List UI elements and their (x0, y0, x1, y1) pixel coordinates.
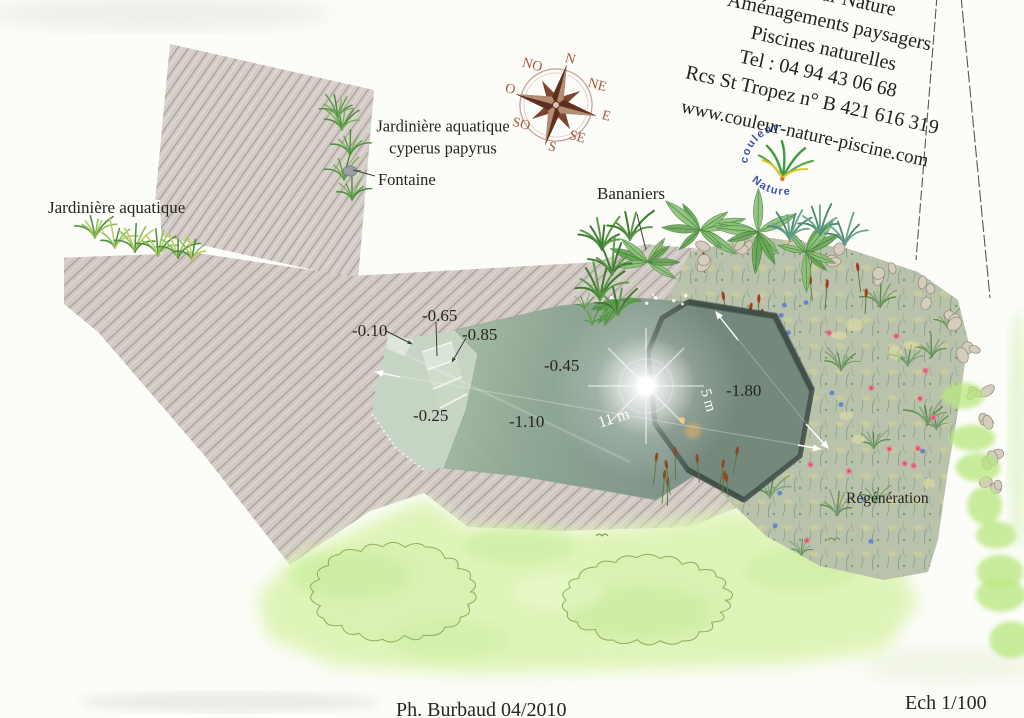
depth-045: -0.45 (544, 356, 579, 376)
depth-065: -0.65 (422, 306, 457, 326)
depth-110: -1.10 (509, 412, 544, 432)
depth-025: -0.25 (413, 406, 448, 426)
label-jardiniere-cyperus: Jardinière aquatique cyperus papyrus (376, 116, 509, 161)
label-regeneration: Régénération (846, 490, 929, 508)
label-fontaine: Fontaine (378, 170, 436, 190)
label-bananiers: Bananiers (597, 184, 665, 204)
depth-010: -0.10 (352, 321, 387, 341)
sun-flare (551, 291, 741, 481)
depth-085: -0.85 (462, 325, 497, 345)
label-jardiniere-left: Jardinière aquatique (48, 198, 185, 218)
depth-180: -1.80 (726, 381, 761, 401)
svg-text:Nature: Nature (748, 173, 795, 200)
logo-word-bottom: Nature (748, 173, 795, 200)
garden-plan-page: couleur Nature Couleur Nature Aménagemen… (0, 0, 1024, 718)
credit-caption: Ph. Burbaud 04/2010 (396, 699, 567, 718)
scale-caption: Ech 1/100 (905, 692, 987, 715)
